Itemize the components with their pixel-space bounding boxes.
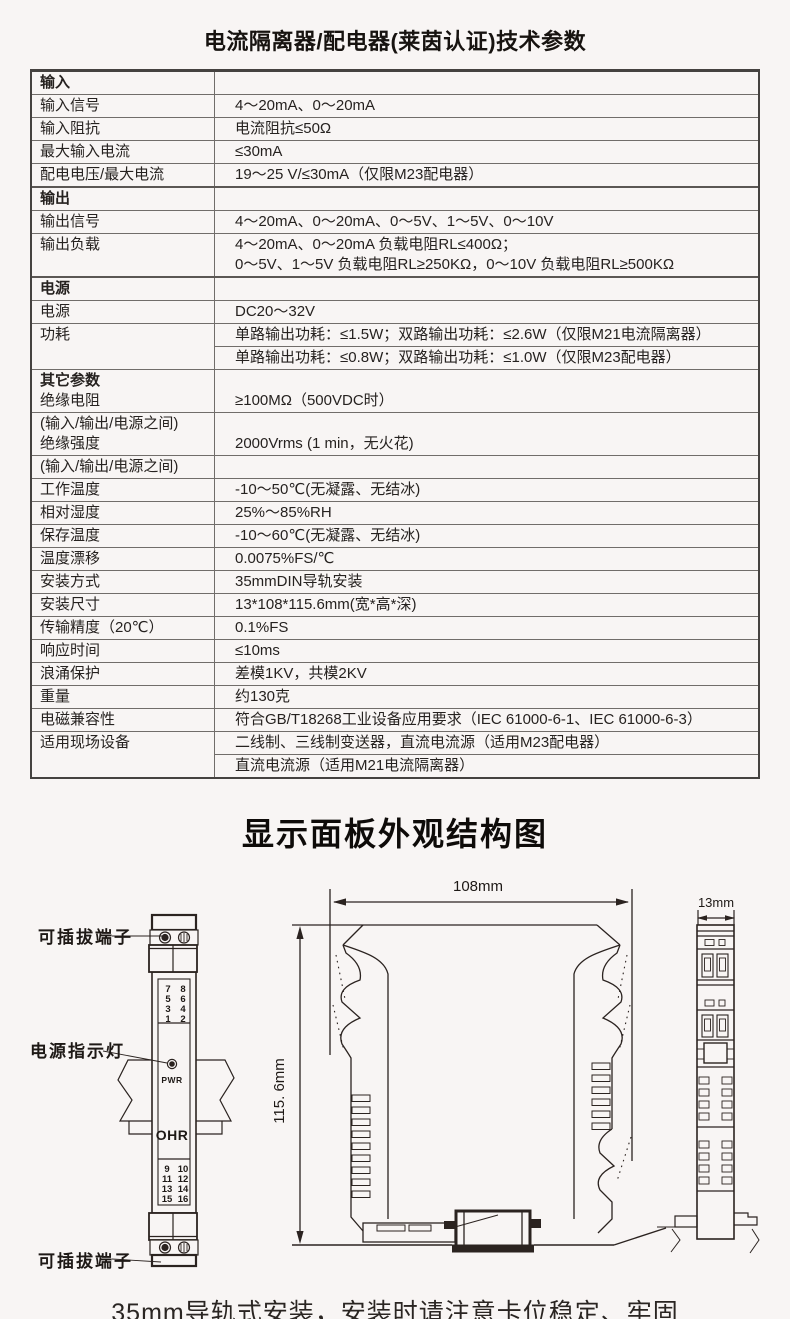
- clip-nub: [530, 1219, 541, 1228]
- din-rail-right: [196, 1060, 234, 1121]
- spec-row: 电源DC20～32V: [32, 300, 758, 323]
- terminal-screw-dark: [162, 1245, 168, 1251]
- install-note-line1: 35mm导轨式安装，安装时请注意卡位稳定、牢固: [0, 1293, 790, 1319]
- hatch-dots: [333, 955, 631, 1181]
- spec-row: 输出信号4～20mA、0～20mA、0～5V、1～5V、0～10V: [32, 210, 758, 233]
- spec-label: 最大输入电流: [32, 141, 214, 163]
- spec-label: 电源: [32, 301, 214, 323]
- dim-width-label: 108mm: [453, 878, 503, 895]
- arrowhead: [616, 898, 629, 905]
- spec-value: 4～20mA、0～20mA: [214, 95, 758, 117]
- spec-value: 二线制、三线制变送器，直流电流源（适用M23配电器）直流电流源（适用M21电流隔…: [214, 732, 758, 777]
- spec-label: 输出信号: [32, 211, 214, 233]
- chamfer: [597, 925, 620, 945]
- spec-row: 适用现场设备二线制、三线制变送器，直流电流源（适用M23配电器）直流电流源（适用…: [32, 731, 758, 777]
- spec-label: 相对湿度: [32, 502, 214, 524]
- module-bottom-cap: [152, 1255, 196, 1266]
- detail-rect: [719, 940, 725, 946]
- spec-value: 13*108*115.6mm(宽*高*深): [214, 594, 758, 616]
- inner-wall-left: [343, 945, 388, 1219]
- spec-row: 输出: [32, 186, 758, 210]
- spec-label: 输出: [32, 188, 214, 210]
- clip-profile-left: [341, 945, 363, 1231]
- terminal-clamp: [702, 1015, 713, 1037]
- spec-value: ≤30mA: [214, 141, 758, 163]
- spec-label: 输入: [32, 72, 214, 94]
- spec-value: [214, 456, 758, 478]
- spec-label: 工作温度: [32, 479, 214, 501]
- datasheet-page: 电流隔离器/配电器(莱茵认证)技术参数 输入输入信号4～20mA、0～20mA输…: [0, 0, 790, 1319]
- label-pluggable-terminal-bottom: 可插拔端子: [38, 1251, 133, 1271]
- spec-label: 功耗: [32, 324, 214, 369]
- spec-label: 输出负载: [32, 234, 214, 276]
- front-view-drawing: [103, 915, 234, 1266]
- terminal-clamp: [717, 1015, 728, 1037]
- spec-row: 其它参数绝缘电阻≥100MΩ（500VDC时）: [32, 369, 758, 412]
- label-pluggable-terminal-top: 可插拔端子: [38, 927, 133, 947]
- spec-row: 安装尺寸13*108*115.6mm(宽*高*深): [32, 593, 758, 616]
- latch-link: [455, 1215, 498, 1227]
- foot-detail: [377, 1225, 405, 1231]
- spec-row: 温度漂移0.0075%FS/℃: [32, 547, 758, 570]
- spec-label: 其它参数绝缘电阻: [32, 370, 214, 412]
- module-top-cap: [152, 915, 196, 930]
- vent-slots: [699, 1077, 732, 1120]
- break-zigzag: [671, 1229, 680, 1252]
- spec-value: 电流阻抗≤50Ω: [214, 118, 758, 140]
- rail-wing-left: [675, 1216, 697, 1227]
- install-notes: 35mm导轨式安装，安装时请注意卡位稳定、牢固 请尽可能垂直安装，以利于仪表内部…: [0, 1293, 790, 1319]
- spec-row: 重量约130克: [32, 685, 758, 708]
- arrowhead: [296, 926, 303, 939]
- spec-row: 传输精度（20℃）0.1%FS: [32, 616, 758, 639]
- module-body: [152, 972, 196, 1213]
- vent-slats-left: [352, 1095, 370, 1198]
- clamp-inner: [720, 958, 726, 971]
- arrowhead: [296, 1231, 303, 1244]
- spec-label: 重量: [32, 686, 214, 708]
- spec-label: 输入信号: [32, 95, 214, 117]
- break-zigzag: [750, 1229, 759, 1253]
- spec-row: (输入/输出/电源之间)绝缘强度2000Vrms (1 min，无火花): [32, 412, 758, 455]
- spec-value: 差模1KV，共模2KV: [214, 663, 758, 685]
- spec-value: 单路输出功耗：≤1.5W；双路输出功耗：≤2.6W（仅限M21电流隔离器）单路输…: [214, 324, 758, 369]
- clamp-inner: [720, 1019, 726, 1031]
- spec-row: 输入: [32, 72, 758, 94]
- spec-row: 输出负载4～20mA、0～20mA 负载电阻RL≤400Ω；0～5V、1～5V …: [32, 233, 758, 276]
- spec-row: 最大输入电流≤30mA: [32, 140, 758, 163]
- spec-value: [214, 278, 758, 300]
- spec-value: 2000Vrms (1 min，无火花): [214, 413, 758, 455]
- spec-value: 35mmDIN导轨安装: [214, 571, 758, 593]
- spec-value: 0.1%FS: [214, 617, 758, 639]
- detail-rect: [705, 940, 714, 946]
- clamp-inner: [705, 958, 711, 971]
- din-rail-left: [118, 1060, 152, 1121]
- spec-label: 传输精度（20℃）: [32, 617, 214, 639]
- spec-row: 电源: [32, 276, 758, 300]
- spec-value: -10～50℃(无凝露、无结冰): [214, 479, 758, 501]
- terminal-clamp: [702, 954, 713, 977]
- din-latch-square: [704, 1043, 727, 1063]
- clip-profile-right-lower: [598, 1129, 614, 1233]
- spec-label: 电磁兼容性: [32, 709, 214, 731]
- terminal-clamp: [717, 954, 728, 977]
- spec-row: 功耗单路输出功耗：≤1.5W；双路输出功耗：≤2.6W（仅限M21电流隔离器）单…: [32, 323, 758, 369]
- clip-profile-right: [603, 945, 623, 1129]
- spec-label: 安装尺寸: [32, 594, 214, 616]
- width-view-drawing: [657, 910, 759, 1253]
- spec-label: 浪涌保护: [32, 663, 214, 685]
- spec-row: 安装方式35mmDIN导轨安装: [32, 570, 758, 593]
- detail-rect: [719, 1000, 725, 1006]
- spec-label: 保存温度: [32, 525, 214, 547]
- spec-value: 4～20mA、0～20mA、0～5V、1～5V、0～10V: [214, 211, 758, 233]
- spec-value: 符合GB/T18268工业设备应用要求（IEC 61000-6-1、IEC 61…: [214, 709, 758, 731]
- spec-value: DC20～32V: [214, 301, 758, 323]
- spec-value: -10～60℃(无凝露、无结冰): [214, 525, 758, 547]
- spec-row: 工作温度-10～50℃(无凝露、无结冰): [32, 478, 758, 501]
- brand-logo: OHR: [156, 1127, 189, 1143]
- clip-base: [452, 1245, 534, 1253]
- spec-row: 相对湿度25%～85%RH: [32, 501, 758, 524]
- spec-row: 浪涌保护差模1KV，共模2KV: [32, 662, 758, 685]
- spec-label: (输入/输出/电源之间): [32, 456, 214, 478]
- chamfer: [343, 925, 363, 945]
- label-power-indicator: 电源指示灯: [30, 1041, 125, 1061]
- rail-tab-right: [734, 1213, 757, 1225]
- dim-height-label: 115. 6mm: [271, 1058, 288, 1124]
- spec-table: 输入输入信号4～20mA、0～20mA输入阻抗电流阻抗≤50Ω最大输入电流≤30…: [30, 69, 760, 779]
- spec-label: 适用现场设备: [32, 732, 214, 777]
- spec-row: 电磁兼容性符合GB/T18268工业设备应用要求（IEC 61000-6-1、I…: [32, 708, 758, 731]
- spec-value: 25%～85%RH: [214, 502, 758, 524]
- spec-row: 输入阻抗电流阻抗≤50Ω: [32, 117, 758, 140]
- power-led-center: [170, 1062, 174, 1066]
- spec-row: 配电电压/最大电流19～25 V/≤30mA（仅限M23配电器）: [32, 163, 758, 186]
- dim-depth-label: 13mm: [698, 895, 734, 910]
- spec-value: 约130克: [214, 686, 758, 708]
- vent-slats-right: [592, 1063, 610, 1130]
- vent-slots: [699, 1141, 732, 1184]
- din-rail-left-lip: [129, 1121, 152, 1134]
- spec-label: 响应时间: [32, 640, 214, 662]
- bottom-terminal-row: [150, 1240, 198, 1255]
- spec-value: 4～20mA、0～20mA 负载电阻RL≤400Ω；0～5V、1～5V 负载电阻…: [214, 234, 758, 276]
- clamp-inner: [705, 1019, 711, 1031]
- structure-diagram-svg: 可插拔端子 电源指示灯 可插拔端子 PWR OHR 78563412 91011…: [0, 865, 790, 1285]
- clip-nub: [444, 1221, 456, 1229]
- spec-label: 电源: [32, 278, 214, 300]
- arrowhead: [333, 898, 346, 905]
- spec-value: ≥100MΩ（500VDC时）: [214, 370, 758, 412]
- baseline-diagonal: [614, 1228, 666, 1245]
- spec-label: 安装方式: [32, 571, 214, 593]
- detail-rect: [705, 1000, 714, 1006]
- structure-diagram: 可插拔端子 电源指示灯 可插拔端子 PWR OHR 78563412 91011…: [0, 865, 790, 1285]
- spec-row: (输入/输出/电源之间): [32, 455, 758, 478]
- spec-value: ≤10ms: [214, 640, 758, 662]
- din-rail-right-lip: [196, 1121, 222, 1134]
- spec-row: 响应时间≤10ms: [32, 639, 758, 662]
- terminal-screw-dark: [162, 935, 168, 941]
- foot-detail: [409, 1225, 431, 1231]
- spec-value: 19～25 V/≤30mA（仅限M23配电器）: [214, 164, 758, 186]
- page-title: 电流隔离器/配电器(莱茵认证)技术参数: [0, 24, 790, 56]
- top-terminal-row: [150, 930, 198, 945]
- side-view-drawing: [292, 889, 666, 1253]
- spec-row: 保存温度-10～60℃(无凝露、无结冰): [32, 524, 758, 547]
- pwr-led-label: PWR: [161, 1075, 182, 1085]
- spec-value: [214, 188, 758, 210]
- spec-label: 配电电压/最大电流: [32, 164, 214, 186]
- spec-label: (输入/输出/电源之间)绝缘强度: [32, 413, 214, 455]
- spec-row: 输入信号4～20mA、0～20mA: [32, 94, 758, 117]
- structure-section-title: 显示面板外观结构图: [0, 809, 790, 855]
- spec-label: 输入阻抗: [32, 118, 214, 140]
- spec-value: [214, 72, 758, 94]
- spec-value: 0.0075%FS/℃: [214, 548, 758, 570]
- spec-label: 温度漂移: [32, 548, 214, 570]
